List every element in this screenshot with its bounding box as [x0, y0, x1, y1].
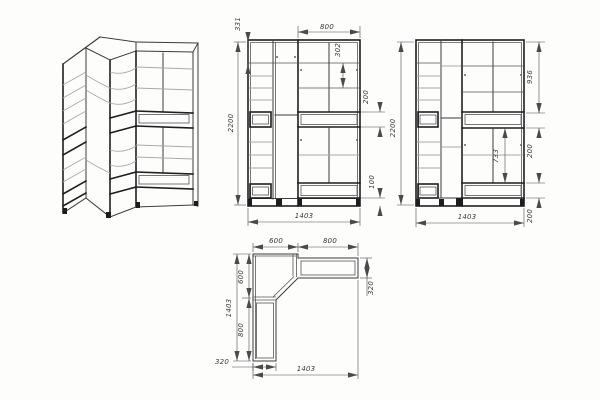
plan-dim-left-wing-length: 800 [237, 323, 245, 337]
plan-dim-depth-total: 1403 [225, 299, 233, 318]
front-dim-right-width: 800 [320, 23, 334, 31]
plan-view: 600 800 1403 600 800 320 [215, 237, 375, 379]
front-dim-plinth: 100 [368, 175, 376, 189]
isometric-drawers [63, 111, 198, 218]
front-elevation-view: 2200 331 800 302 200 100 [227, 17, 385, 226]
side-dim-top-section: 936 [526, 70, 534, 84]
plan-dim-width-total: 1403 [297, 365, 316, 373]
side-dim-lower-drawer: 200 [526, 209, 534, 223]
side-dim-width: 1403 [458, 213, 477, 221]
wardrobe-drawing-svg: 2200 331 800 302 200 100 [0, 0, 600, 400]
front-dim-height: 2200 [227, 113, 235, 132]
front-dim-top-shelf: 331 [234, 17, 242, 31]
front-dim-shelf-gap: 302 [334, 43, 342, 57]
plan-dim-corner-depth: 600 [237, 270, 245, 284]
plan-outline [253, 254, 358, 361]
isometric-shelves [63, 67, 193, 182]
side-elevation-view: 2200 936 200 733 200 1403 [389, 40, 545, 227]
front-dim-width: 1403 [295, 212, 314, 220]
front-dim-drawer: 200 [362, 90, 370, 104]
side-dim-height: 2200 [389, 118, 397, 137]
plan-dim-wing-width: 800 [323, 237, 337, 245]
side-cabinet [416, 40, 524, 206]
technical-drawing-canvas: 2200 331 800 302 200 100 [0, 0, 600, 400]
side-dim-upper-drawer: 200 [526, 144, 534, 158]
side-dim-shelf-span: 733 [492, 149, 500, 163]
isometric-view [63, 37, 198, 218]
plan-dim-corner-width: 600 [269, 237, 283, 245]
plan-dim-wing-depth-right: 320 [367, 281, 375, 295]
plan-dim-wing-depth-bottom: 320 [215, 358, 229, 366]
